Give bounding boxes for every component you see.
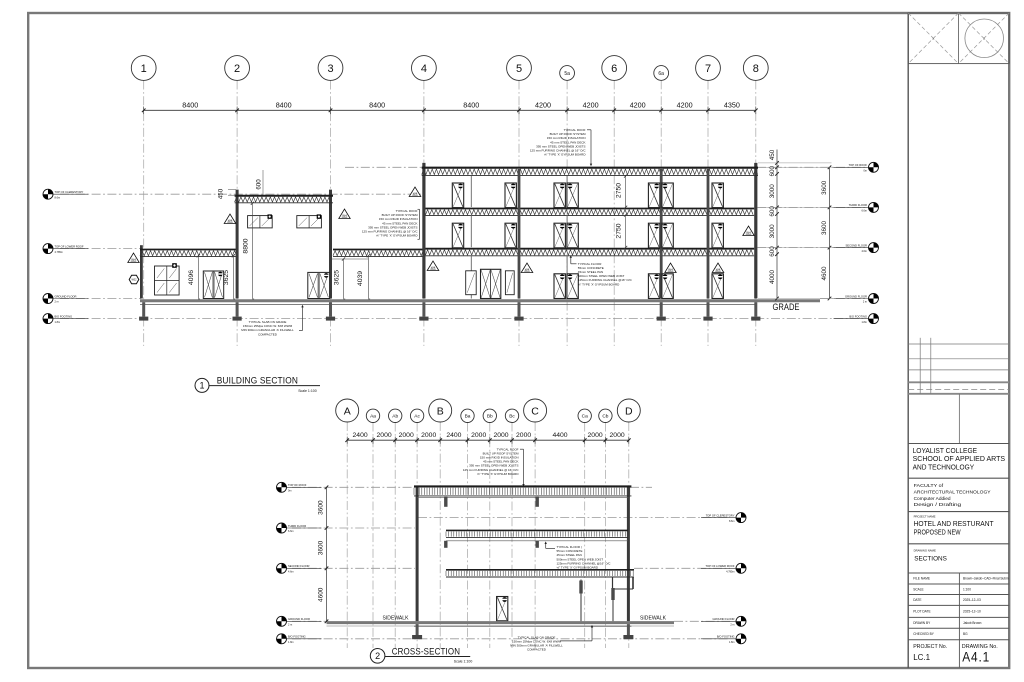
svg-text:THIRD FLOOR: THIRD FLOOR — [288, 524, 306, 528]
svg-text:DRAWN BY: DRAWN BY — [913, 621, 931, 625]
svg-text:4039: 4039 — [357, 271, 364, 286]
svg-text:Ac: Ac — [414, 414, 420, 420]
svg-text:1: 1 — [141, 63, 147, 75]
svg-text:1.8m: 1.8m — [288, 641, 294, 644]
svg-text:TOP OF ROOF: TOP OF ROOF — [288, 483, 307, 487]
svg-text:6a: 6a — [658, 71, 664, 77]
svg-text:B/O FOOTING: B/O FOOTING — [849, 314, 867, 318]
svg-text:0m: 0m — [864, 170, 867, 173]
svg-text:6.6m: 6.6m — [288, 530, 294, 533]
svg-text:B/O FOOTING: B/O FOOTING — [55, 314, 73, 318]
svg-text:Brown–Jakob–CAD–Final Subm: Brown–Jakob–CAD–Final Subm — [963, 577, 1009, 581]
svg-text:2 m: 2 m — [863, 301, 867, 304]
svg-text:C: C — [531, 405, 539, 417]
svg-text:Bb: Bb — [487, 414, 493, 420]
svg-text:1.8m: 1.8m — [55, 321, 61, 324]
svg-text:3: 3 — [327, 63, 333, 75]
svg-text:PROJECT No.: PROJECT No. — [913, 644, 947, 650]
svg-text:GRADE: GRADE — [773, 302, 800, 313]
svg-text:6.6m: 6.6m — [861, 210, 867, 213]
svg-text:TOP OF ROOF: TOP OF ROOF — [849, 163, 868, 167]
svg-text:2000: 2000 — [399, 432, 414, 439]
svg-text:THIRD FLOOR: THIRD FLOOR — [849, 203, 867, 207]
svg-text:LC.1: LC.1 — [913, 653, 930, 662]
svg-text:4200: 4200 — [583, 100, 599, 109]
svg-text:4: 4 — [421, 63, 427, 75]
svg-text:4.785m: 4.785m — [55, 251, 63, 254]
svg-text:W4: W4 — [716, 267, 721, 271]
svg-text:A: A — [344, 405, 351, 417]
svg-text:6: 6 — [611, 63, 617, 75]
svg-text:8: 8 — [753, 63, 759, 75]
svg-text:COMPACTED: COMPACTED — [527, 648, 547, 652]
svg-text:2000: 2000 — [610, 432, 625, 439]
svg-text:B/O FOOTING: B/O FOOTING — [717, 635, 735, 639]
svg-text:Bc: Bc — [509, 414, 515, 420]
svg-text:⅝” TYPE ‘X’ GYPSUM BOARD: ⅝” TYPE ‘X’ GYPSUM BOARD — [376, 234, 418, 238]
svg-text:2400: 2400 — [446, 432, 461, 439]
svg-text:⅝” TYPE ‘X’ GYPSUM BOARD: ⅝” TYPE ‘X’ GYPSUM BOARD — [557, 566, 599, 570]
svg-text:CROSS-SECTION: CROSS-SECTION — [392, 646, 461, 657]
svg-text:W4: W4 — [668, 267, 673, 271]
svg-text:⅝” TYPE ‘X’ GYPSUM BOARD: ⅝” TYPE ‘X’ GYPSUM BOARD — [544, 153, 586, 157]
svg-text:4400: 4400 — [552, 432, 567, 439]
svg-text:4200: 4200 — [535, 100, 551, 109]
svg-text:2000: 2000 — [471, 432, 486, 439]
svg-text:2: 2 — [234, 63, 240, 75]
svg-text:3000: 3000 — [769, 224, 776, 239]
svg-text:2400: 2400 — [353, 432, 368, 439]
svg-text:PROJECT NAME: PROJECT NAME — [914, 514, 936, 518]
svg-text:2 m: 2 m — [288, 624, 292, 627]
svg-text:BUILDING SECTION: BUILDING SECTION — [217, 375, 298, 386]
svg-text:W4: W4 — [131, 257, 136, 261]
svg-text:4200: 4200 — [677, 100, 693, 109]
svg-text:W4: W4 — [228, 218, 233, 222]
svg-text:8.6m: 8.6m — [55, 196, 61, 199]
svg-text:BG: BG — [963, 632, 968, 636]
svg-text:PROPOSED NEW: PROPOSED NEW — [914, 527, 961, 536]
svg-text:2025–12–10: 2025–12–10 — [963, 610, 981, 614]
svg-text:TOP OF LOWER ROOF: TOP OF LOWER ROOF — [705, 564, 734, 568]
svg-text:Jakob Brown: Jakob Brown — [963, 621, 982, 625]
svg-text:3000: 3000 — [769, 184, 776, 199]
svg-text:3600: 3600 — [821, 221, 828, 236]
svg-text:3600: 3600 — [318, 540, 325, 555]
svg-text:Scale 1:100: Scale 1:100 — [454, 659, 473, 663]
svg-text:B: B — [437, 405, 444, 417]
svg-text:3625: 3625 — [223, 270, 230, 285]
svg-text:GROUND FLOOR: GROUND FLOOR — [845, 294, 867, 298]
svg-text:4000: 4000 — [769, 270, 776, 285]
svg-text:2000: 2000 — [493, 432, 508, 439]
svg-text:DATE: DATE — [913, 598, 921, 602]
svg-text:450: 450 — [217, 188, 224, 199]
svg-text:3600: 3600 — [821, 180, 828, 195]
svg-text:⅝” TYPE ‘X’ GYPSUM BOARD: ⅝” TYPE ‘X’ GYPSUM BOARD — [578, 282, 620, 286]
svg-text:8400: 8400 — [276, 100, 292, 109]
svg-text:8400: 8400 — [369, 100, 385, 109]
svg-text:4.6m: 4.6m — [288, 571, 294, 574]
svg-text:2750: 2750 — [615, 223, 622, 238]
svg-text:2000: 2000 — [588, 432, 603, 439]
svg-text:600: 600 — [256, 179, 263, 190]
svg-text:A4.1: A4.1 — [962, 650, 990, 665]
svg-text:B/O FOOTING: B/O FOOTING — [288, 635, 306, 639]
svg-text:8400: 8400 — [463, 100, 479, 109]
svg-text:Ba: Ba — [465, 414, 471, 420]
svg-text:FACULTY of: FACULTY of — [914, 483, 944, 488]
svg-text:⅝” TYPE ‘X’ GYPSUM BOARD: ⅝” TYPE ‘X’ GYPSUM BOARD — [477, 472, 519, 476]
svg-text:ARCHITECTURAL TECHNOLOGY: ARCHITECTURAL TECHNOLOGY — [914, 489, 991, 494]
svg-text:W4: W4 — [525, 267, 530, 271]
svg-text:Ab: Ab — [392, 414, 398, 420]
svg-text:3600: 3600 — [318, 500, 325, 515]
svg-text:4350: 4350 — [724, 100, 740, 109]
svg-text:5: 5 — [516, 63, 522, 75]
svg-text:0m: 0m — [288, 490, 291, 493]
svg-text:2 m: 2 m — [55, 301, 59, 304]
svg-text:FILE NAME: FILE NAME — [913, 577, 930, 581]
svg-text:SECOND FLOOR: SECOND FLOOR — [845, 243, 867, 247]
svg-text:SIDEWALK: SIDEWALK — [383, 616, 409, 622]
svg-text:8400: 8400 — [182, 100, 198, 109]
svg-text:W4: W4 — [413, 191, 418, 195]
svg-text:TOP OF CLERESTORY: TOP OF CLERESTORY — [55, 190, 84, 194]
svg-text:4600: 4600 — [318, 587, 325, 602]
svg-text:SCALE: SCALE — [913, 588, 923, 592]
svg-text:GROUND FLOOR: GROUND FLOOR — [288, 617, 310, 621]
svg-text:2025–12–03: 2025–12–03 — [963, 598, 981, 602]
svg-text:CHECKED BY: CHECKED BY — [913, 632, 935, 636]
svg-text:3625: 3625 — [333, 270, 340, 285]
svg-text:4096: 4096 — [188, 270, 195, 285]
svg-text:GROUND FLOOR: GROUND FLOOR — [713, 617, 735, 621]
svg-text:W4: W4 — [342, 213, 347, 217]
svg-text:2000: 2000 — [377, 432, 392, 439]
svg-text:1.8m: 1.8m — [729, 641, 735, 644]
svg-text:2000: 2000 — [421, 432, 436, 439]
svg-text:GROUND FLOOR: GROUND FLOOR — [55, 294, 77, 298]
svg-text:7: 7 — [705, 63, 711, 75]
svg-text:SIDEWALK: SIDEWALK — [640, 616, 666, 622]
svg-text:W4: W4 — [746, 230, 751, 234]
svg-text:W4: W4 — [431, 265, 436, 269]
svg-text:TOP OF LOWER ROOF: TOP OF LOWER ROOF — [55, 244, 84, 248]
svg-text:COMPACTED: COMPACTED — [258, 332, 278, 336]
svg-text:4.6m: 4.6m — [861, 250, 867, 253]
svg-text:W02: W02 — [132, 279, 138, 282]
svg-text:5a: 5a — [564, 71, 570, 77]
svg-text:SECOND FLOOR: SECOND FLOOR — [288, 564, 310, 568]
svg-text:Cb: Cb — [602, 414, 608, 420]
svg-text:Ca: Ca — [582, 414, 588, 420]
svg-text:2: 2 — [375, 651, 380, 661]
svg-text:Scale 1:100: Scale 1:100 — [298, 389, 317, 393]
svg-text:4600: 4600 — [821, 266, 828, 281]
svg-text:4200: 4200 — [630, 100, 646, 109]
svg-text:AND TECHNOLOGY: AND TECHNOLOGY — [913, 463, 975, 472]
svg-text:Design / Drafting: Design / Drafting — [914, 502, 962, 507]
svg-text:PLOT DATE: PLOT DATE — [913, 610, 930, 614]
svg-text:2750: 2750 — [615, 183, 622, 198]
svg-text:Computer Addied: Computer Addied — [914, 496, 951, 501]
svg-text:1.8m: 1.8m — [861, 321, 867, 324]
svg-text:2 m: 2 m — [730, 624, 734, 627]
svg-text:TOP OF CLERESTORY: TOP OF CLERESTORY — [706, 513, 735, 517]
svg-text:4.785m: 4.785m — [726, 571, 734, 574]
svg-text:2000: 2000 — [516, 432, 531, 439]
svg-text:1:100: 1:100 — [963, 588, 971, 592]
svg-text:Aa: Aa — [370, 414, 376, 420]
svg-text:8800: 8800 — [242, 238, 249, 253]
svg-text:450: 450 — [769, 149, 776, 160]
svg-text:DRAWING NAME: DRAWING NAME — [914, 548, 936, 552]
svg-text:1: 1 — [199, 381, 204, 391]
svg-text:8.6m: 8.6m — [729, 520, 735, 523]
svg-text:D: D — [625, 405, 633, 417]
svg-text:SECTIONS: SECTIONS — [914, 555, 947, 562]
